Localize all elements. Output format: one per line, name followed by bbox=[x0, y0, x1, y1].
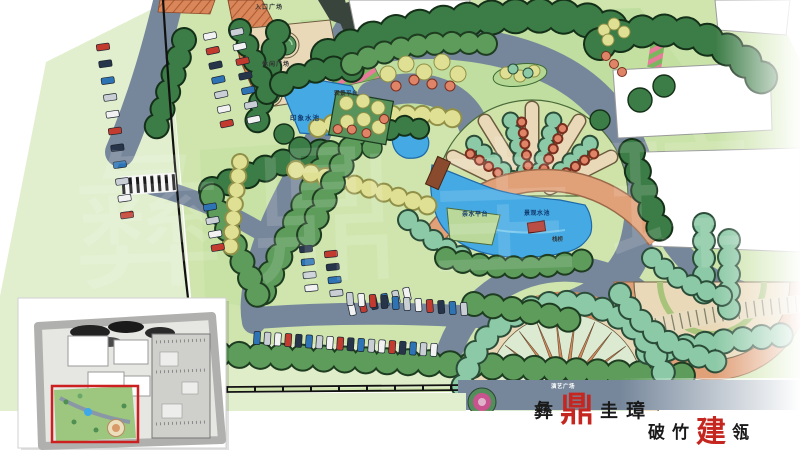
master-plan-svg: 彝鼎圭璋 入口广场 休闲广场 印象水池 观景平台 亲水平台 景观水池 栈桥 演艺… bbox=[0, 0, 800, 450]
south-road-band-fade bbox=[560, 378, 800, 412]
label-impression-pool: 印象水池 bbox=[290, 113, 320, 122]
label-plank-bridge: 栈桥 bbox=[552, 235, 564, 243]
car bbox=[449, 301, 456, 314]
car bbox=[285, 333, 292, 346]
car bbox=[96, 43, 110, 51]
car bbox=[264, 332, 271, 345]
label-waterside-platform: 亲水平台 bbox=[462, 210, 488, 218]
car bbox=[253, 331, 260, 344]
label-performance-plaza: 演艺广场 bbox=[551, 382, 575, 390]
car bbox=[103, 93, 117, 101]
car bbox=[368, 339, 375, 352]
car bbox=[409, 342, 416, 355]
inset-building bbox=[68, 336, 108, 366]
car bbox=[274, 333, 281, 346]
car bbox=[389, 340, 396, 353]
label-viewing-platform: 观景平台 bbox=[334, 89, 358, 97]
inset-building bbox=[114, 340, 148, 364]
logo-char: 竹 bbox=[671, 422, 689, 443]
car bbox=[99, 60, 113, 68]
inset-plan bbox=[38, 316, 222, 446]
watermark-text: 彝鼎圭璋 bbox=[70, 115, 788, 314]
car bbox=[101, 76, 115, 84]
car bbox=[426, 299, 433, 312]
inset-key-map bbox=[18, 298, 229, 450]
car bbox=[460, 302, 467, 315]
bottom-verge bbox=[204, 393, 466, 411]
car bbox=[316, 335, 323, 348]
logo-char: 瓴 bbox=[732, 422, 749, 443]
car bbox=[106, 110, 120, 118]
logo-char: 彝 bbox=[534, 399, 553, 422]
logo-char: 破 bbox=[648, 422, 665, 443]
car bbox=[108, 127, 122, 135]
label-landscape-pool: 景观水池 bbox=[523, 209, 550, 217]
car bbox=[399, 341, 406, 354]
inset-colored-zone bbox=[54, 386, 136, 442]
car bbox=[378, 340, 385, 353]
car bbox=[438, 300, 445, 313]
logo-brush-char: 建 bbox=[696, 415, 726, 450]
car bbox=[420, 342, 427, 355]
logo-char: 璋 bbox=[626, 399, 645, 422]
label-leisure-plaza: 休闲广场 bbox=[261, 60, 290, 68]
car bbox=[326, 336, 333, 349]
car bbox=[347, 338, 354, 351]
car bbox=[357, 338, 364, 351]
logo-char: 圭 bbox=[600, 400, 618, 422]
landscape-masterplan-canvas: 彝鼎圭璋 入口广场 休闲广场 印象水池 观景平台 亲水平台 景观水池 栈桥 演艺… bbox=[0, 0, 800, 450]
car bbox=[295, 334, 302, 347]
logo-seal-char: 鼎 bbox=[560, 390, 594, 430]
car bbox=[337, 337, 344, 350]
car bbox=[305, 335, 312, 348]
label-entry-plaza: 入口广场 bbox=[254, 3, 283, 11]
car bbox=[430, 343, 437, 356]
